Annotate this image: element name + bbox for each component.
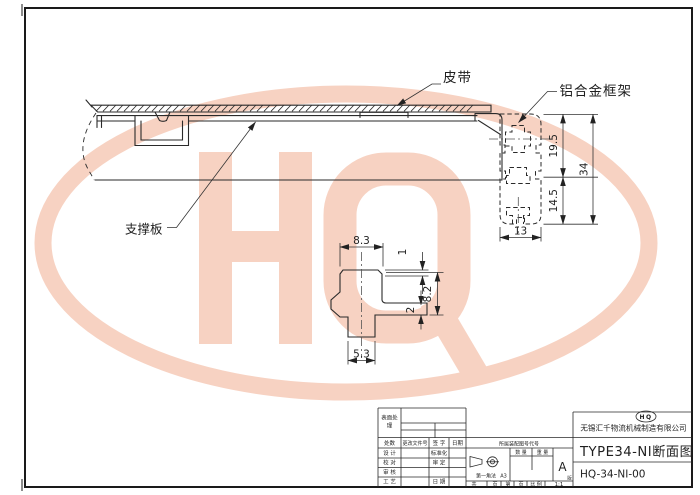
tb-scale-value: 1:1 (555, 482, 564, 488)
frame-lip (475, 114, 502, 180)
drawing-canvas: 19.5 14.5 34 13 皮带 铝合金框架 支撑板 8.3 5.3 1 8… (0, 0, 700, 495)
tb-total: 共 (471, 481, 476, 488)
title-block: 表面处 理 处数 更改文件号 签 字 日期 设 计 标准化 校 对 审 定 审 … (378, 408, 693, 488)
watermark-letter-h (199, 152, 312, 344)
tb-first-angle: 第一角法 (476, 473, 496, 480)
dim-text-8.2: 8.2 (422, 286, 434, 303)
tb-belongs: 所属装配图号代号 (499, 441, 539, 448)
tb-sheet: 第 (505, 481, 510, 488)
watermark-letter-q (340, 169, 478, 378)
sheet-border (25, 8, 692, 487)
tb-page2: 页 (518, 482, 523, 488)
tb-rev-sign: 签 字 (433, 439, 446, 447)
tb-row-review: 审 核 (383, 468, 396, 476)
tb-company: 无锡汇千物流机械制造有限公司 (580, 423, 686, 433)
tb-scale-label: 比 例 (530, 481, 542, 488)
dim-text-2: 2 (405, 307, 417, 314)
first-angle-projection-symbol (470, 457, 499, 468)
tb-qty: 数 量 (515, 449, 527, 456)
company-logo-text: HQ (639, 414, 652, 421)
tb-row-standard: 标准化 (431, 449, 448, 457)
extrusion-mid-cavity (507, 168, 531, 184)
drawing-sheet: 19.5 14.5 34 13 皮带 铝合金框架 支撑板 8.3 5.3 1 8… (0, 0, 700, 495)
tb-surface-1: 表面处 (381, 414, 398, 422)
belt-hatching (96, 105, 473, 111)
dim-text-19.5: 19.5 (548, 134, 560, 157)
tb-rev-label: 版 (567, 475, 572, 482)
tb-rev-count: 处数 (384, 439, 396, 447)
tb-surface-2: 理 (387, 423, 393, 430)
label-belt: 皮带 (443, 70, 472, 86)
belt-break-tick (86, 100, 92, 107)
tb-rev-date: 日期 (452, 440, 464, 447)
label-frame: 铝合金框架 (560, 84, 633, 100)
tb-paper-size: A3 (500, 474, 507, 480)
tb-rev-mark: A (558, 460, 567, 474)
tb-drawing-title: TYPE34-NI断面图 (579, 444, 693, 460)
tb-row-check: 校 对 (383, 458, 396, 466)
label-support: 支撑板 (125, 222, 163, 237)
dim-text-1: 1 (397, 249, 409, 256)
dim-text-13: 13 (514, 226, 527, 238)
tb-row-approve: 审 定 (433, 458, 446, 466)
dim-text-5.3: 5.3 (353, 349, 370, 361)
guide-strip-tab (360, 112, 408, 117)
tb-weight: 重 量 (537, 449, 549, 456)
dim-text-34: 34 (579, 162, 591, 176)
tb-row-craft: 工 艺 (383, 478, 396, 485)
dim-text-14.5: 14.5 (548, 189, 560, 212)
tb-drawing-code: HQ-34-NI-00 (580, 469, 646, 481)
dim-text-8.3: 8.3 (353, 235, 370, 247)
tb-page1: 页 (492, 482, 497, 488)
company-logo: HQ (636, 411, 656, 422)
tb-rev-doc: 更改文件号 (402, 440, 427, 447)
tb-row-date: 日 期 (433, 478, 446, 485)
tb-row-design: 设 计 (383, 449, 396, 457)
